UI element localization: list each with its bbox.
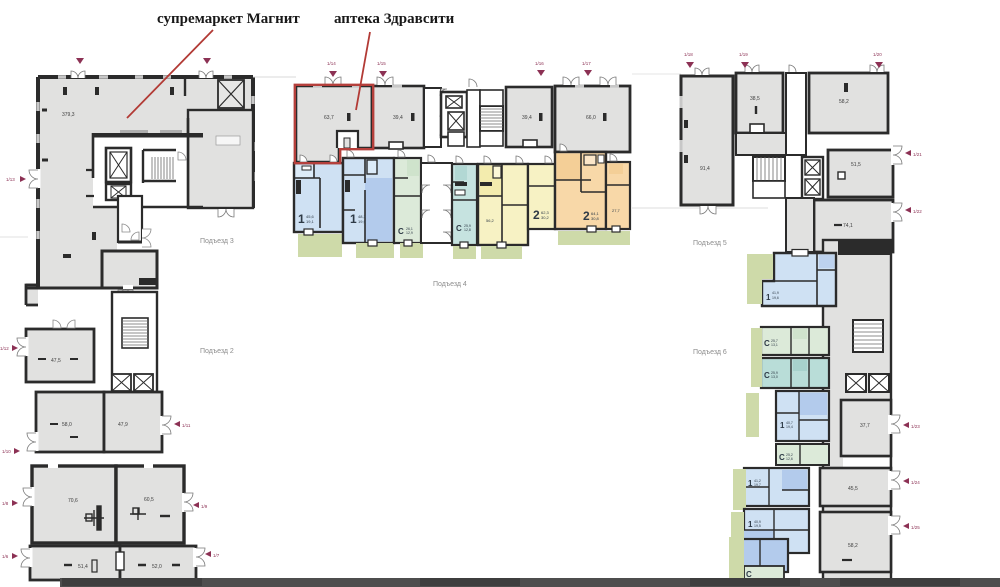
svg-text:1/14: 1/14 — [327, 61, 336, 66]
svg-text:12,9: 12,9 — [406, 231, 413, 235]
svg-text:1/8: 1/8 — [2, 501, 9, 506]
svg-text:37,7: 37,7 — [860, 423, 870, 429]
svg-text:1/12: 1/12 — [0, 346, 9, 351]
svg-text:19,1: 19,1 — [306, 219, 315, 224]
svg-text:1/11: 1/11 — [182, 423, 191, 428]
svg-text:Подъезд 3: Подъезд 3 — [200, 238, 234, 245]
svg-text:1/19: 1/19 — [739, 52, 748, 57]
svg-text:70,6: 70,6 — [68, 498, 78, 504]
svg-text:41,9: 41,9 — [772, 291, 779, 295]
svg-text:С: С — [456, 224, 462, 233]
svg-text:С: С — [746, 570, 752, 579]
svg-text:С: С — [398, 227, 404, 236]
svg-text:1: 1 — [350, 212, 357, 226]
svg-text:63,7: 63,7 — [324, 115, 334, 121]
svg-text:Подъезд 2: Подъезд 2 — [200, 348, 234, 355]
svg-text:1/18: 1/18 — [684, 52, 693, 57]
svg-text:66,0: 66,0 — [586, 115, 596, 121]
svg-text:1: 1 — [298, 212, 305, 226]
svg-text:1: 1 — [780, 421, 785, 430]
svg-text:12,8: 12,8 — [464, 228, 471, 232]
svg-text:Подъезд 5: Подъезд 5 — [693, 240, 727, 247]
svg-text:51,4: 51,4 — [78, 564, 88, 570]
svg-text:45,5: 45,5 — [848, 486, 858, 492]
svg-text:1/6: 1/6 — [2, 554, 9, 559]
svg-text:1/17: 1/17 — [582, 61, 591, 66]
svg-text:27,7: 27,7 — [612, 208, 621, 213]
svg-text:56,2: 56,2 — [486, 218, 495, 223]
svg-text:30,8: 30,8 — [591, 216, 600, 221]
svg-text:30,2: 30,2 — [541, 215, 550, 220]
svg-text:1/24: 1/24 — [911, 480, 920, 485]
svg-text:74,1: 74,1 — [843, 223, 853, 229]
svg-text:13,1: 13,1 — [771, 343, 778, 347]
svg-text:58,2: 58,2 — [848, 543, 858, 549]
svg-text:1/15: 1/15 — [377, 61, 386, 66]
svg-text:58,2: 58,2 — [839, 99, 849, 105]
svg-text:91,4: 91,4 — [700, 166, 710, 172]
svg-text:19,9: 19,9 — [358, 219, 367, 224]
svg-text:1/13: 1/13 — [6, 177, 15, 182]
svg-text:60,5: 60,5 — [144, 497, 154, 503]
svg-text:379,3: 379,3 — [62, 112, 75, 118]
svg-text:58,0: 58,0 — [62, 422, 72, 428]
svg-text:19,4: 19,4 — [786, 425, 793, 429]
svg-text:1: 1 — [766, 293, 771, 302]
svg-text:1: 1 — [748, 479, 753, 488]
svg-text:52,0: 52,0 — [152, 564, 162, 570]
svg-text:12,6: 12,6 — [786, 457, 793, 461]
svg-text:1/22: 1/22 — [913, 209, 922, 214]
svg-text:1/7: 1/7 — [213, 553, 220, 558]
svg-text:51,5: 51,5 — [851, 162, 861, 168]
svg-text:1/25: 1/25 — [911, 525, 920, 530]
svg-text:1/23: 1/23 — [911, 424, 920, 429]
svg-text:1/21: 1/21 — [913, 152, 922, 157]
svg-text:супремаркет Магнит: супремаркет Магнит — [157, 11, 300, 27]
svg-text:Подъезд 4: Подъезд 4 — [433, 281, 467, 288]
svg-text:С: С — [779, 453, 785, 462]
svg-text:С: С — [764, 339, 770, 348]
svg-text:13,0: 13,0 — [771, 375, 778, 379]
svg-text:1/9: 1/9 — [201, 504, 208, 509]
svg-text:39,4: 39,4 — [393, 115, 403, 121]
svg-text:1/10: 1/10 — [2, 449, 11, 454]
svg-text:19,6: 19,6 — [772, 296, 779, 300]
svg-text:Подъезд 6: Подъезд 6 — [693, 349, 727, 356]
svg-text:38,5: 38,5 — [750, 96, 760, 102]
svg-text:47,9: 47,9 — [118, 422, 128, 428]
svg-text:47,5: 47,5 — [51, 358, 61, 364]
svg-text:С: С — [764, 371, 770, 380]
svg-text:39,4: 39,4 — [522, 115, 532, 121]
svg-text:1/16: 1/16 — [535, 61, 544, 66]
svg-text:1/20: 1/20 — [873, 52, 882, 57]
svg-text:2: 2 — [533, 208, 540, 222]
svg-text:19,7: 19,7 — [754, 483, 761, 487]
svg-text:19,5: 19,5 — [754, 524, 761, 528]
svg-text:2: 2 — [583, 209, 590, 223]
svg-text:аптека Здравсити: аптека Здравсити — [334, 11, 455, 27]
svg-text:1: 1 — [748, 520, 753, 529]
